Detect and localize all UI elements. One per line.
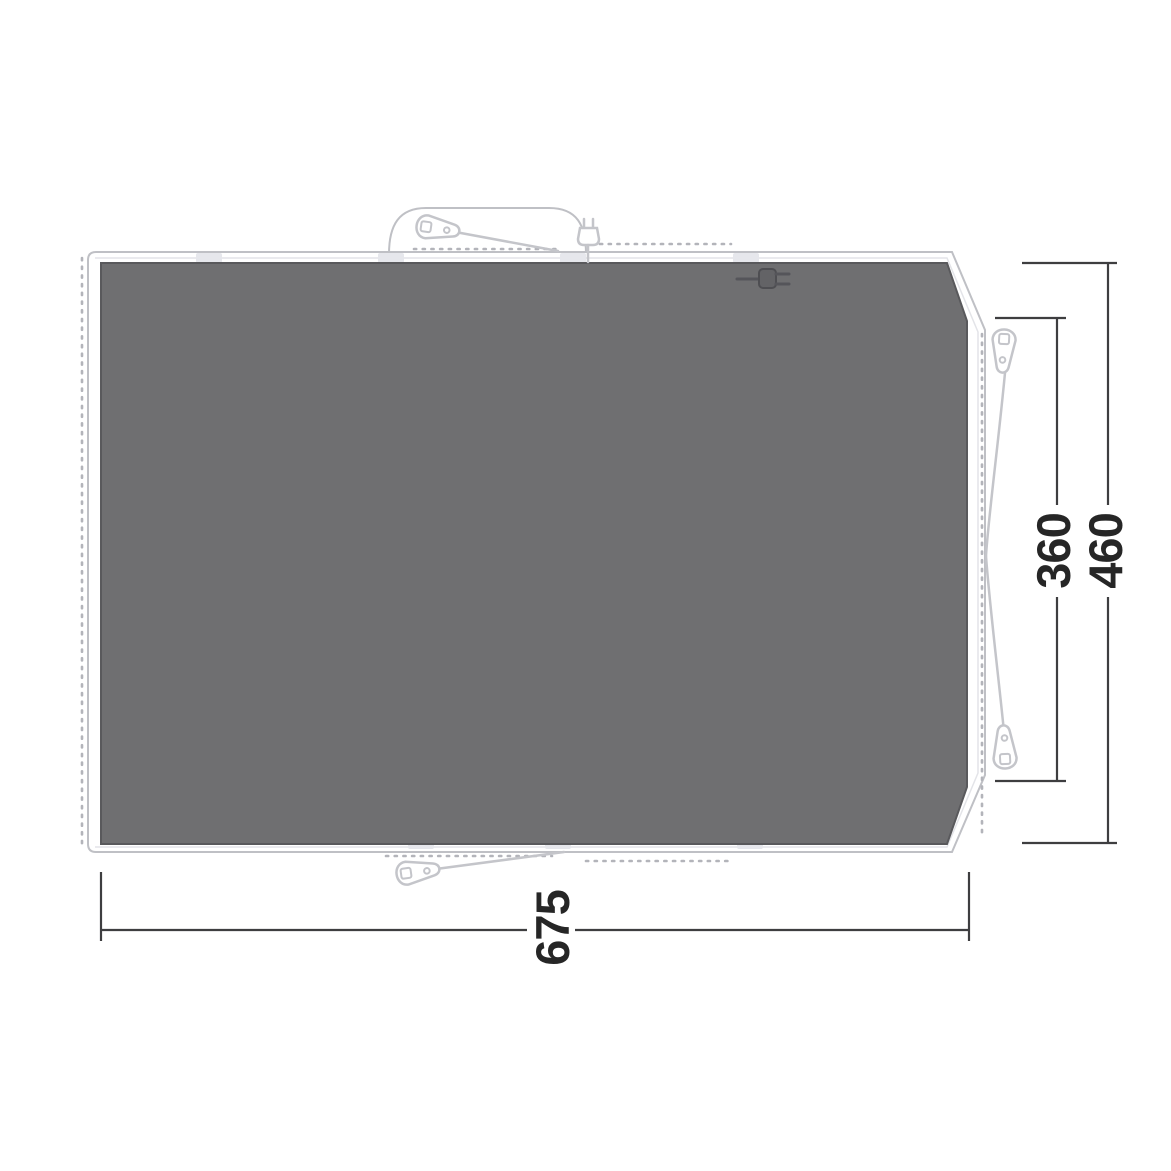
webbing-tab bbox=[378, 253, 404, 263]
webbing-tab bbox=[733, 253, 759, 263]
dimension-outer-depth-label: 460 bbox=[1079, 513, 1132, 588]
tent-peg-icon bbox=[395, 857, 441, 886]
tent-peg-icon bbox=[991, 329, 1016, 373]
dimension-width: 675 bbox=[101, 872, 969, 974]
guy-line-bottom bbox=[436, 852, 564, 869]
guy-line-right-lower bbox=[986, 556, 1004, 732]
dimension-inner-depth: 360 bbox=[995, 318, 1080, 781]
guy-line-right-upper bbox=[986, 362, 1006, 556]
webbing-tab bbox=[196, 253, 222, 263]
webbing-tab bbox=[560, 253, 586, 263]
tent-peg-icon bbox=[992, 725, 1017, 769]
footprint-mat bbox=[101, 263, 967, 844]
diagram-canvas: 675 360 460 bbox=[0, 0, 1171, 1171]
dimension-inner-depth-label: 360 bbox=[1027, 513, 1080, 588]
dimension-width-label: 675 bbox=[526, 890, 579, 965]
footprint-diagram: 675 360 460 bbox=[0, 0, 1171, 1171]
